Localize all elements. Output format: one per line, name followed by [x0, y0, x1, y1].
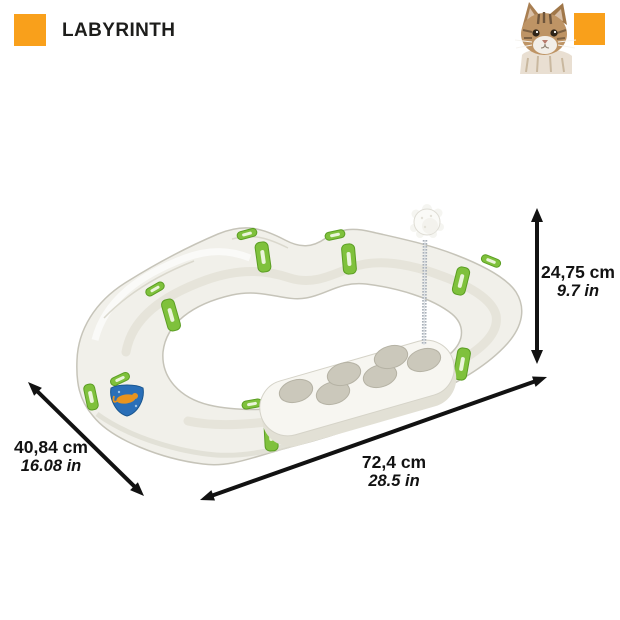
product-dimension-diagram: LABYRINTH	[0, 0, 620, 620]
length-dimension-label: 72,4 cm 28.5 in	[324, 452, 464, 491]
figure	[0, 0, 620, 620]
height-imperial: 9.7 in	[536, 282, 620, 301]
height-dimension-label: 24,75 cm 9.7 in	[536, 262, 620, 301]
height-metric: 24,75 cm	[536, 262, 620, 282]
length-imperial: 28.5 in	[324, 472, 464, 491]
connector-clip-tab	[480, 254, 502, 269]
depth-metric: 40,84 cm	[2, 437, 100, 457]
depth-dimension-label: 40,84 cm 16.08 in	[2, 437, 100, 476]
ball-bridge	[253, 334, 463, 454]
product-image	[77, 204, 522, 465]
length-metric: 72,4 cm	[324, 452, 464, 472]
depth-imperial: 16.08 in	[2, 457, 100, 476]
connector-clip	[341, 243, 357, 274]
